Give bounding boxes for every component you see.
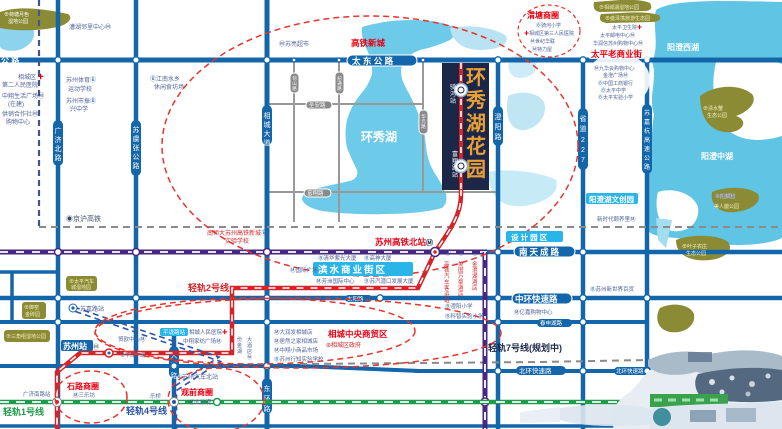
svg-text:购物中心: 购物中心 bbox=[6, 118, 30, 126]
svg-text:相城区 ✚: 相城区 ✚ bbox=[18, 73, 44, 81]
svg-text:Ⓜ国际广场: Ⓜ国际广场 bbox=[290, 266, 318, 274]
svg-text:⊕荷塘月色: ⊕荷塘月色 bbox=[4, 11, 29, 18]
svg-text:阳澄湖文创园: 阳澄湖文创园 bbox=[589, 194, 634, 204]
svg-text:苏嘉路站: 苏嘉路站 bbox=[80, 305, 104, 313]
svg-text:设 计 园 区: 设 计 园 区 bbox=[511, 232, 548, 242]
svg-text:Ⓜ特力屋: Ⓜ特力屋 bbox=[532, 46, 552, 53]
svg-text:Ⓑ高神大厦: Ⓑ高神大厦 bbox=[364, 254, 392, 262]
svg-text:苏州市振Ⓑ: 苏州市振Ⓑ bbox=[66, 97, 96, 105]
svg-text:生态公园: 生态公园 bbox=[707, 112, 727, 119]
svg-text:运动学校: 运动学校 bbox=[68, 85, 92, 93]
svg-text:轻轨1号线: 轻轨1号线 bbox=[3, 406, 44, 417]
svg-text:中翔生活广场Ⓜ: 中翔生活广场Ⓜ bbox=[2, 92, 44, 100]
svg-text:生态公园: 生态公园 bbox=[686, 250, 706, 257]
svg-text:⊕盛泽荡旅游生态园: ⊕盛泽荡旅游生态园 bbox=[605, 15, 650, 22]
svg-text:澄阳路: 澄阳路 bbox=[495, 112, 502, 141]
svg-text:⊕相城湖湿地公园: ⊕相城湖湿地公园 bbox=[599, 4, 639, 11]
svg-text:Ⓜ亿嘉购物中心: Ⓜ亿嘉购物中心 bbox=[514, 308, 553, 316]
svg-text:Ⓑ苏州行知实验学校: Ⓑ苏州行知实验学校 bbox=[274, 355, 324, 363]
svg-text:太平老商业街: 太平老商业街 bbox=[590, 49, 643, 59]
svg-text:南师大苏州高铁新城Ⓑ: 南师大苏州高铁新城Ⓑ bbox=[207, 229, 267, 237]
svg-text:⊕叶子农庄: ⊕叶子农庄 bbox=[682, 243, 707, 250]
svg-text:石路商圈: 石路商圈 bbox=[66, 381, 99, 391]
svg-text:相城人民医院✚: 相城人民医院✚ bbox=[189, 328, 228, 336]
svg-text:Ⓜ世纪华联: Ⓜ世纪华联 bbox=[530, 38, 555, 45]
svg-text:圣安路: 圣安路 bbox=[309, 101, 326, 109]
svg-text:新时代颐养里Ⓜ: 新时代颐养里Ⓜ bbox=[597, 215, 636, 223]
svg-text:Ⓑ苏汽潜口发展大厦: Ⓑ苏汽潜口发展大厦 bbox=[364, 277, 414, 285]
svg-text:Ⓜ苏亮超市: Ⓜ苏亮超市 bbox=[279, 40, 309, 48]
svg-text:第二人民医院: 第二人民医院 bbox=[2, 81, 38, 89]
svg-text:Ⓜ玄妙观: Ⓜ玄妙观 bbox=[189, 398, 212, 406]
svg-text:Ⓑ中国工商银行: Ⓑ中国工商银行 bbox=[598, 80, 633, 87]
svg-text:乐桥: 乐桥 bbox=[150, 392, 162, 400]
svg-text:◉京沪高铁: ◉京沪高铁 bbox=[66, 214, 101, 223]
svg-text:中翔家纺广场Ⓜ: 中翔家纺广场Ⓜ bbox=[183, 337, 222, 345]
svg-text:份金湖: 份金湖 bbox=[237, 336, 242, 355]
svg-text:Ⓜ居然之家相城店: Ⓜ居然之家相城店 bbox=[274, 337, 319, 345]
svg-text:实验学校: 实验学校 bbox=[225, 237, 249, 245]
svg-text:Ⓑ苏州汽车北站: Ⓑ苏州汽车北站 bbox=[176, 373, 218, 381]
svg-text:苏虞张公路: 苏虞张公路 bbox=[133, 125, 140, 170]
svg-text:高铁新城: 高铁新城 bbox=[351, 38, 386, 48]
svg-text:Ⓑ太平实验小学: Ⓑ太平实验小学 bbox=[598, 94, 633, 101]
svg-text:南天成路: 南天成路 bbox=[519, 247, 561, 257]
svg-text:环秀湖: 环秀湖 bbox=[361, 129, 397, 144]
svg-text:(在建): (在建) bbox=[8, 100, 24, 108]
svg-text:供销合作社Ⓜ: 供销合作社Ⓜ bbox=[2, 110, 38, 118]
svg-text:何山路: 何山路 bbox=[292, 75, 297, 92]
svg-text:华润信苏州购物中心Ⓜ: 华润信苏州购物中心Ⓜ bbox=[593, 40, 643, 47]
svg-text:⊕平江广场: ⊕平江广场 bbox=[120, 352, 145, 359]
svg-text:观前商圈: 观前商圈 bbox=[181, 387, 213, 397]
svg-text:滨水商业街区: 滨水商业街区 bbox=[318, 264, 387, 276]
svg-text:平泷路站: 平泷路站 bbox=[163, 328, 186, 336]
svg-text:太平邮电中心Ⓜ: 太平邮电中心Ⓜ bbox=[600, 32, 635, 39]
svg-text:Ⓑ太平中学: Ⓑ太平中学 bbox=[601, 87, 626, 94]
svg-text:纪通路: 纪通路 bbox=[337, 75, 342, 92]
svg-text:苏州体育Ⓑ: 苏州体育Ⓑ bbox=[66, 76, 96, 84]
svg-text:苏州站: 苏州站 bbox=[63, 341, 87, 351]
svg-text:⊛相城区政府: ⊛相城区政府 bbox=[326, 341, 361, 349]
svg-text:美人腿公园: 美人腿公园 bbox=[714, 203, 739, 210]
svg-text:富翔路站: 富翔路站 bbox=[452, 150, 458, 179]
svg-text:阳澄西湖: 阳澄西湖 bbox=[667, 42, 699, 52]
svg-text:休闲食坊场: 休闲食坊场 bbox=[154, 83, 184, 91]
svg-text:公 路: 公 路 bbox=[1, 55, 20, 65]
svg-text:太平卫生院✚: 太平卫生院✚ bbox=[612, 24, 642, 31]
svg-text:中环快速路: 中环快速路 bbox=[515, 294, 558, 304]
svg-text:Ⓜ: Ⓜ bbox=[93, 343, 99, 351]
svg-text:环秀湖花园: 环秀湖花园 bbox=[465, 67, 486, 181]
svg-text:轻轨2号线: 轻轨2号线 bbox=[188, 282, 229, 293]
svg-text:北环快速路: 北环快速路 bbox=[519, 366, 552, 375]
svg-text:太 东 公 路: 太 东 公 路 bbox=[351, 56, 394, 66]
svg-text:Ⓑ骑河小学: Ⓑ骑河小学 bbox=[536, 22, 561, 29]
svg-text:金澄湖酒店: 金澄湖酒店 bbox=[472, 260, 478, 292]
svg-text:轻轨4号线: 轻轨4号线 bbox=[126, 405, 167, 416]
svg-text:Ⓑ科智实验小学: Ⓑ科智实验小学 bbox=[445, 312, 484, 320]
svg-text:漕湖邻里中心Ⓜ: 漕湖邻里中心Ⓜ bbox=[69, 23, 111, 31]
svg-text:Ⓑ清华紫光大厦: Ⓑ清华紫光大厦 bbox=[318, 254, 357, 262]
svg-text:⊕清水蟹: ⊕清水蟹 bbox=[703, 105, 723, 112]
svg-text:⊕御窑: ⊕御窑 bbox=[24, 304, 39, 311]
svg-text:Ⓜ中翔小商品市场: Ⓜ中翔小商品市场 bbox=[274, 346, 319, 354]
svg-text:金砖园: 金砖园 bbox=[25, 311, 40, 318]
svg-text:Ⓜ大润发相城店: Ⓜ大润发相城店 bbox=[274, 328, 313, 336]
svg-text:春申湖路: 春申湖路 bbox=[540, 319, 563, 327]
svg-text:城湿地园: 城湿地园 bbox=[71, 284, 91, 291]
svg-text:兴中学: 兴中学 bbox=[70, 105, 88, 113]
svg-text:阳澄中湖: 阳澄中湖 bbox=[701, 151, 733, 161]
svg-text:湿地公园: 湿地公园 bbox=[8, 18, 28, 25]
svg-text:Ⓜ九华会购物中心·: Ⓜ九华会购物中心· bbox=[594, 65, 636, 72]
svg-text:苏州高铁北站Ⓜ: 苏州高铁北站Ⓜ bbox=[375, 237, 433, 247]
svg-text:Ⓑ江南水乡: Ⓑ江南水乡 bbox=[150, 75, 180, 83]
svg-text:Ⓜ: Ⓜ bbox=[472, 249, 478, 257]
svg-text:大酒店Ⓜ: 大酒店Ⓜ bbox=[247, 336, 252, 361]
svg-text:Ⓜ: Ⓜ bbox=[445, 249, 451, 257]
svg-text:⊕太平汽车: ⊕太平汽车 bbox=[69, 278, 94, 285]
svg-text:✚相城区第三人民医院: ✚相城区第三人民医院 bbox=[524, 30, 574, 37]
svg-text:Ⓑ澄阳小学: Ⓑ澄阳小学 bbox=[445, 302, 473, 310]
svg-text:北环快速路: 北环快速路 bbox=[616, 367, 644, 375]
svg-text:华元路: 华元路 bbox=[421, 113, 426, 130]
svg-text:金澄广场Ⓜ: 金澄广场Ⓜ bbox=[603, 72, 628, 79]
svg-text:广济南路站: 广济南路站 bbox=[23, 390, 51, 398]
svg-text:富翔路: 富翔路 bbox=[307, 189, 324, 197]
svg-text:相城中央商贸区: 相城中央商贸区 bbox=[328, 329, 388, 339]
svg-text:Ⓜ三乐坊: Ⓜ三乐坊 bbox=[73, 391, 96, 399]
svg-text:Ⓑ苏州新世界百货: Ⓑ苏州新世界百货 bbox=[590, 285, 635, 293]
svg-text:贸欧中心Ⓜ: 贸欧中心Ⓜ bbox=[118, 335, 146, 343]
svg-text:高铁汽车客运站: 高铁汽车客运站 bbox=[444, 260, 450, 304]
svg-text:Ⓜ: Ⓜ bbox=[458, 249, 464, 257]
svg-text:美国万豪酒店: 美国万豪酒店 bbox=[458, 260, 464, 298]
svg-text:⊕阳澄湖: ⊕阳澄湖 bbox=[715, 193, 735, 200]
svg-text:⊕三角咀湿地公园: ⊕三角咀湿地公园 bbox=[6, 333, 46, 340]
svg-text:骑河站: 骑河站 bbox=[450, 83, 456, 105]
svg-text:Ⓜ芳洲国际中心: Ⓜ芳洲国际中心 bbox=[316, 277, 355, 285]
svg-text:轻轨7号线(规划中): 轻轨7号线(规划中) bbox=[488, 342, 562, 353]
svg-text:渭塘商圈: 渭塘商圈 bbox=[527, 10, 559, 20]
